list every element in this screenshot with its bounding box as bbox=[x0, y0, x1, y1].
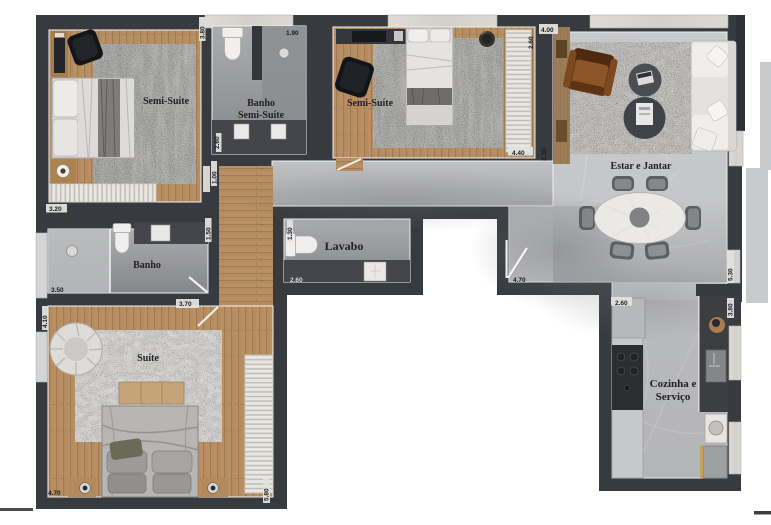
svg-text:Cozinha e: Cozinha e bbox=[650, 378, 697, 390]
svg-text:5.30: 5.30 bbox=[728, 268, 735, 281]
svg-text:Banho: Banho bbox=[247, 98, 275, 109]
svg-text:4.40: 4.40 bbox=[512, 150, 525, 157]
svg-text:Serviço: Serviço bbox=[656, 391, 691, 403]
svg-text:Semi-Suíte: Semi-Suíte bbox=[238, 110, 285, 121]
svg-text:Semi-Suíte: Semi-Suíte bbox=[143, 96, 190, 107]
svg-text:Lavabo: Lavabo bbox=[325, 239, 364, 253]
svg-text:1.30: 1.30 bbox=[287, 227, 294, 240]
svg-text:2.60: 2.60 bbox=[615, 300, 628, 307]
svg-text:1.50: 1.50 bbox=[206, 227, 213, 240]
svg-text:2.60: 2.60 bbox=[214, 136, 221, 149]
svg-text:Estar e Jantar: Estar e Jantar bbox=[611, 161, 672, 172]
svg-text:3.80: 3.80 bbox=[728, 303, 735, 316]
svg-text:3.20: 3.20 bbox=[49, 206, 62, 213]
svg-text:Semi-Suíte: Semi-Suíte bbox=[347, 98, 394, 109]
svg-text:5.80: 5.80 bbox=[264, 488, 271, 501]
svg-text:4.70: 4.70 bbox=[513, 277, 526, 284]
svg-text:3.50: 3.50 bbox=[51, 287, 64, 294]
svg-text:Banho: Banho bbox=[133, 260, 161, 271]
svg-text:1.00: 1.00 bbox=[212, 171, 219, 184]
svg-text:4.10: 4.10 bbox=[42, 315, 49, 328]
svg-text:2.60: 2.60 bbox=[528, 36, 535, 49]
svg-text:2.30: 2.30 bbox=[541, 148, 548, 161]
svg-text:4.70: 4.70 bbox=[48, 490, 61, 497]
svg-text:4.00: 4.00 bbox=[541, 27, 554, 34]
svg-text:3.80: 3.80 bbox=[200, 26, 207, 39]
svg-text:1.90: 1.90 bbox=[286, 30, 299, 37]
svg-text:3.70: 3.70 bbox=[179, 301, 192, 308]
svg-text:2.60: 2.60 bbox=[290, 277, 303, 284]
svg-text:Suíte: Suíte bbox=[137, 353, 159, 364]
